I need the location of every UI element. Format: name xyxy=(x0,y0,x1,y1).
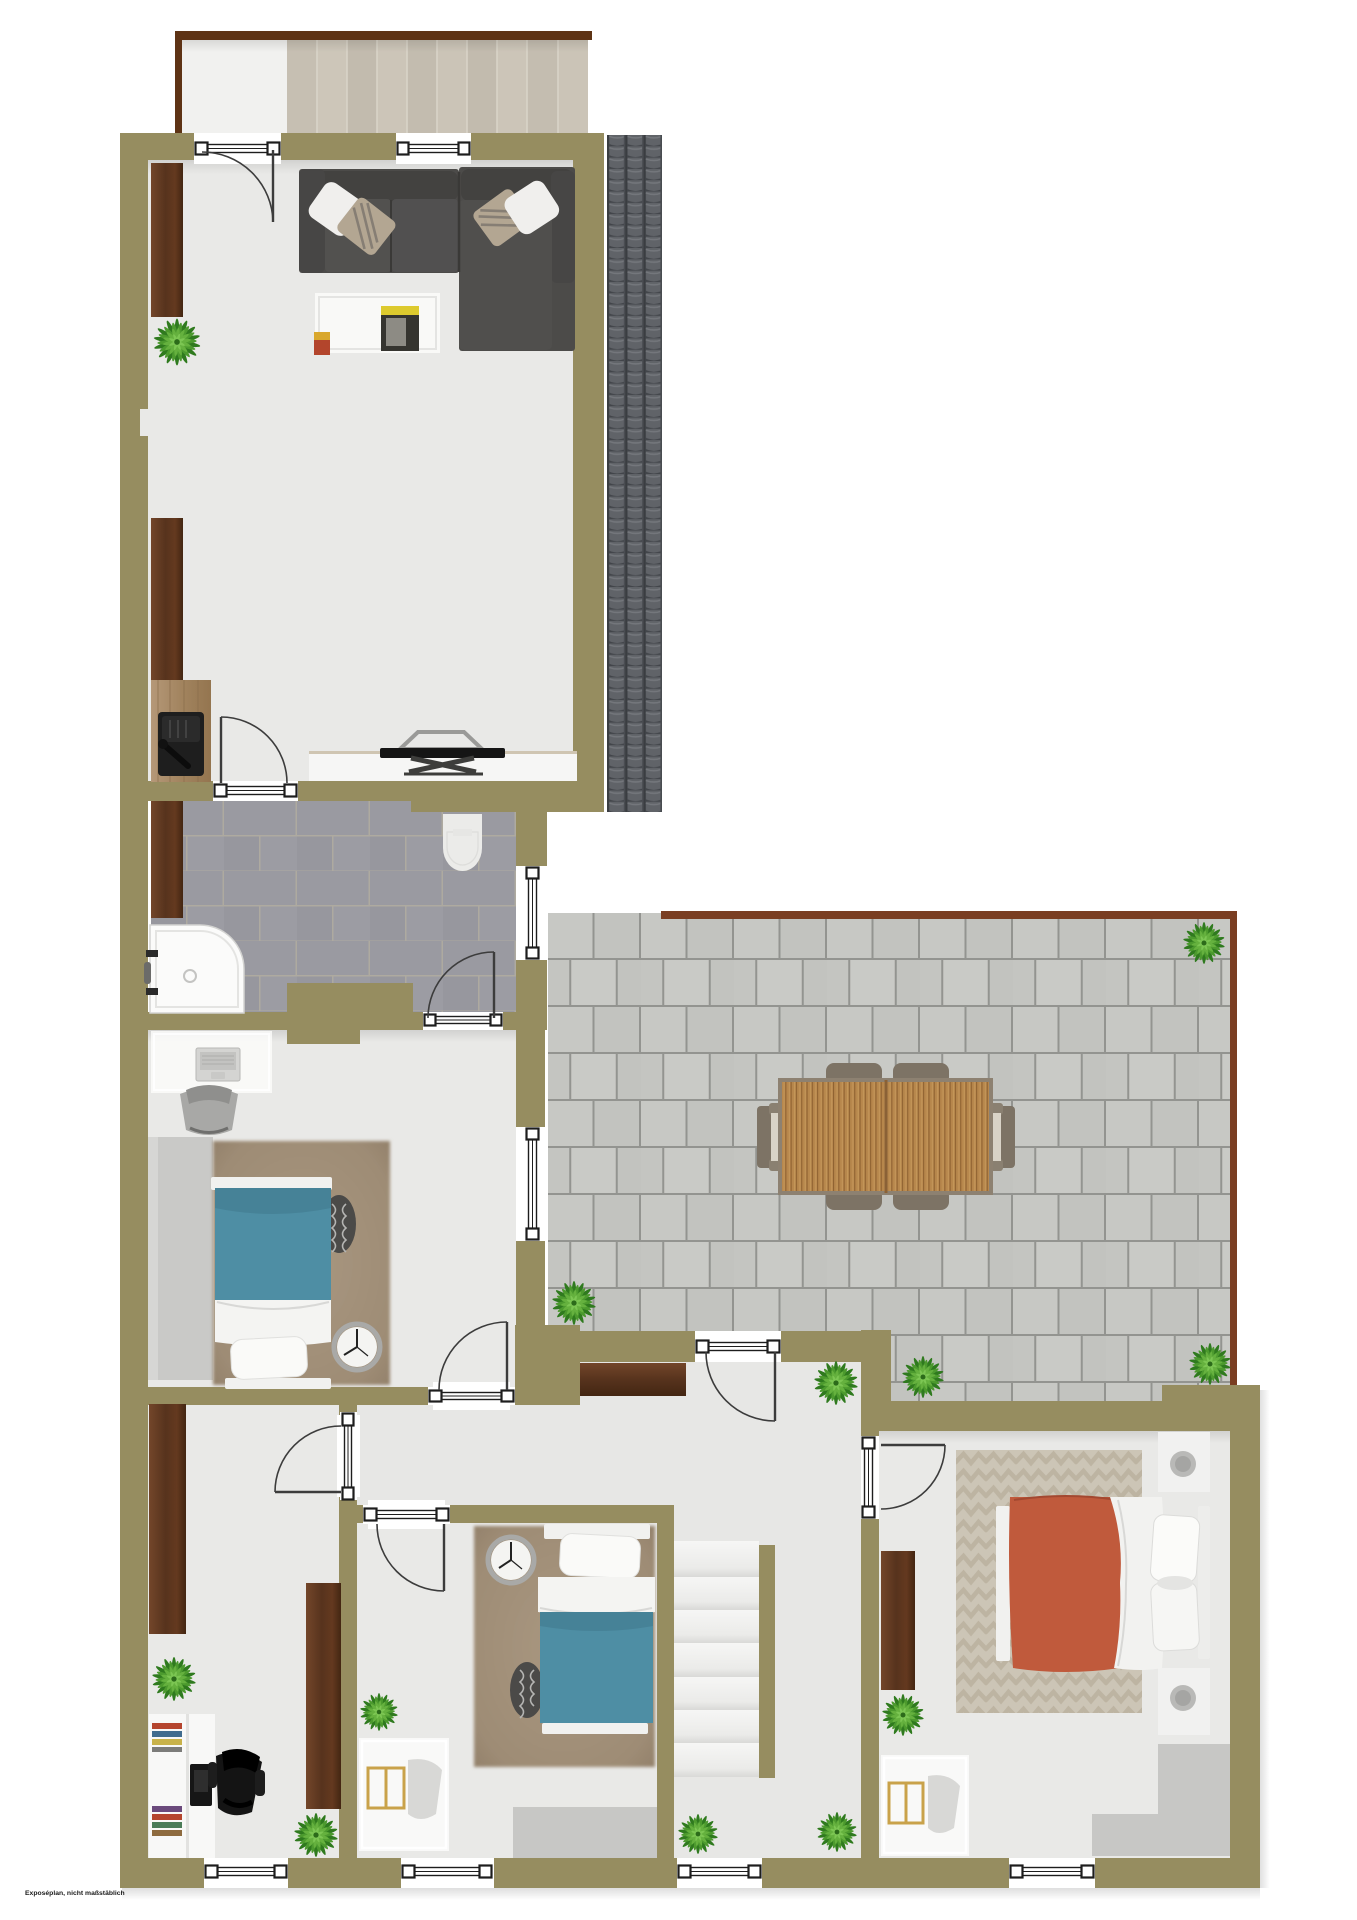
svg-text:Exposéplan, nicht maßstäblich: Exposéplan, nicht maßstäblich xyxy=(25,1890,125,1897)
